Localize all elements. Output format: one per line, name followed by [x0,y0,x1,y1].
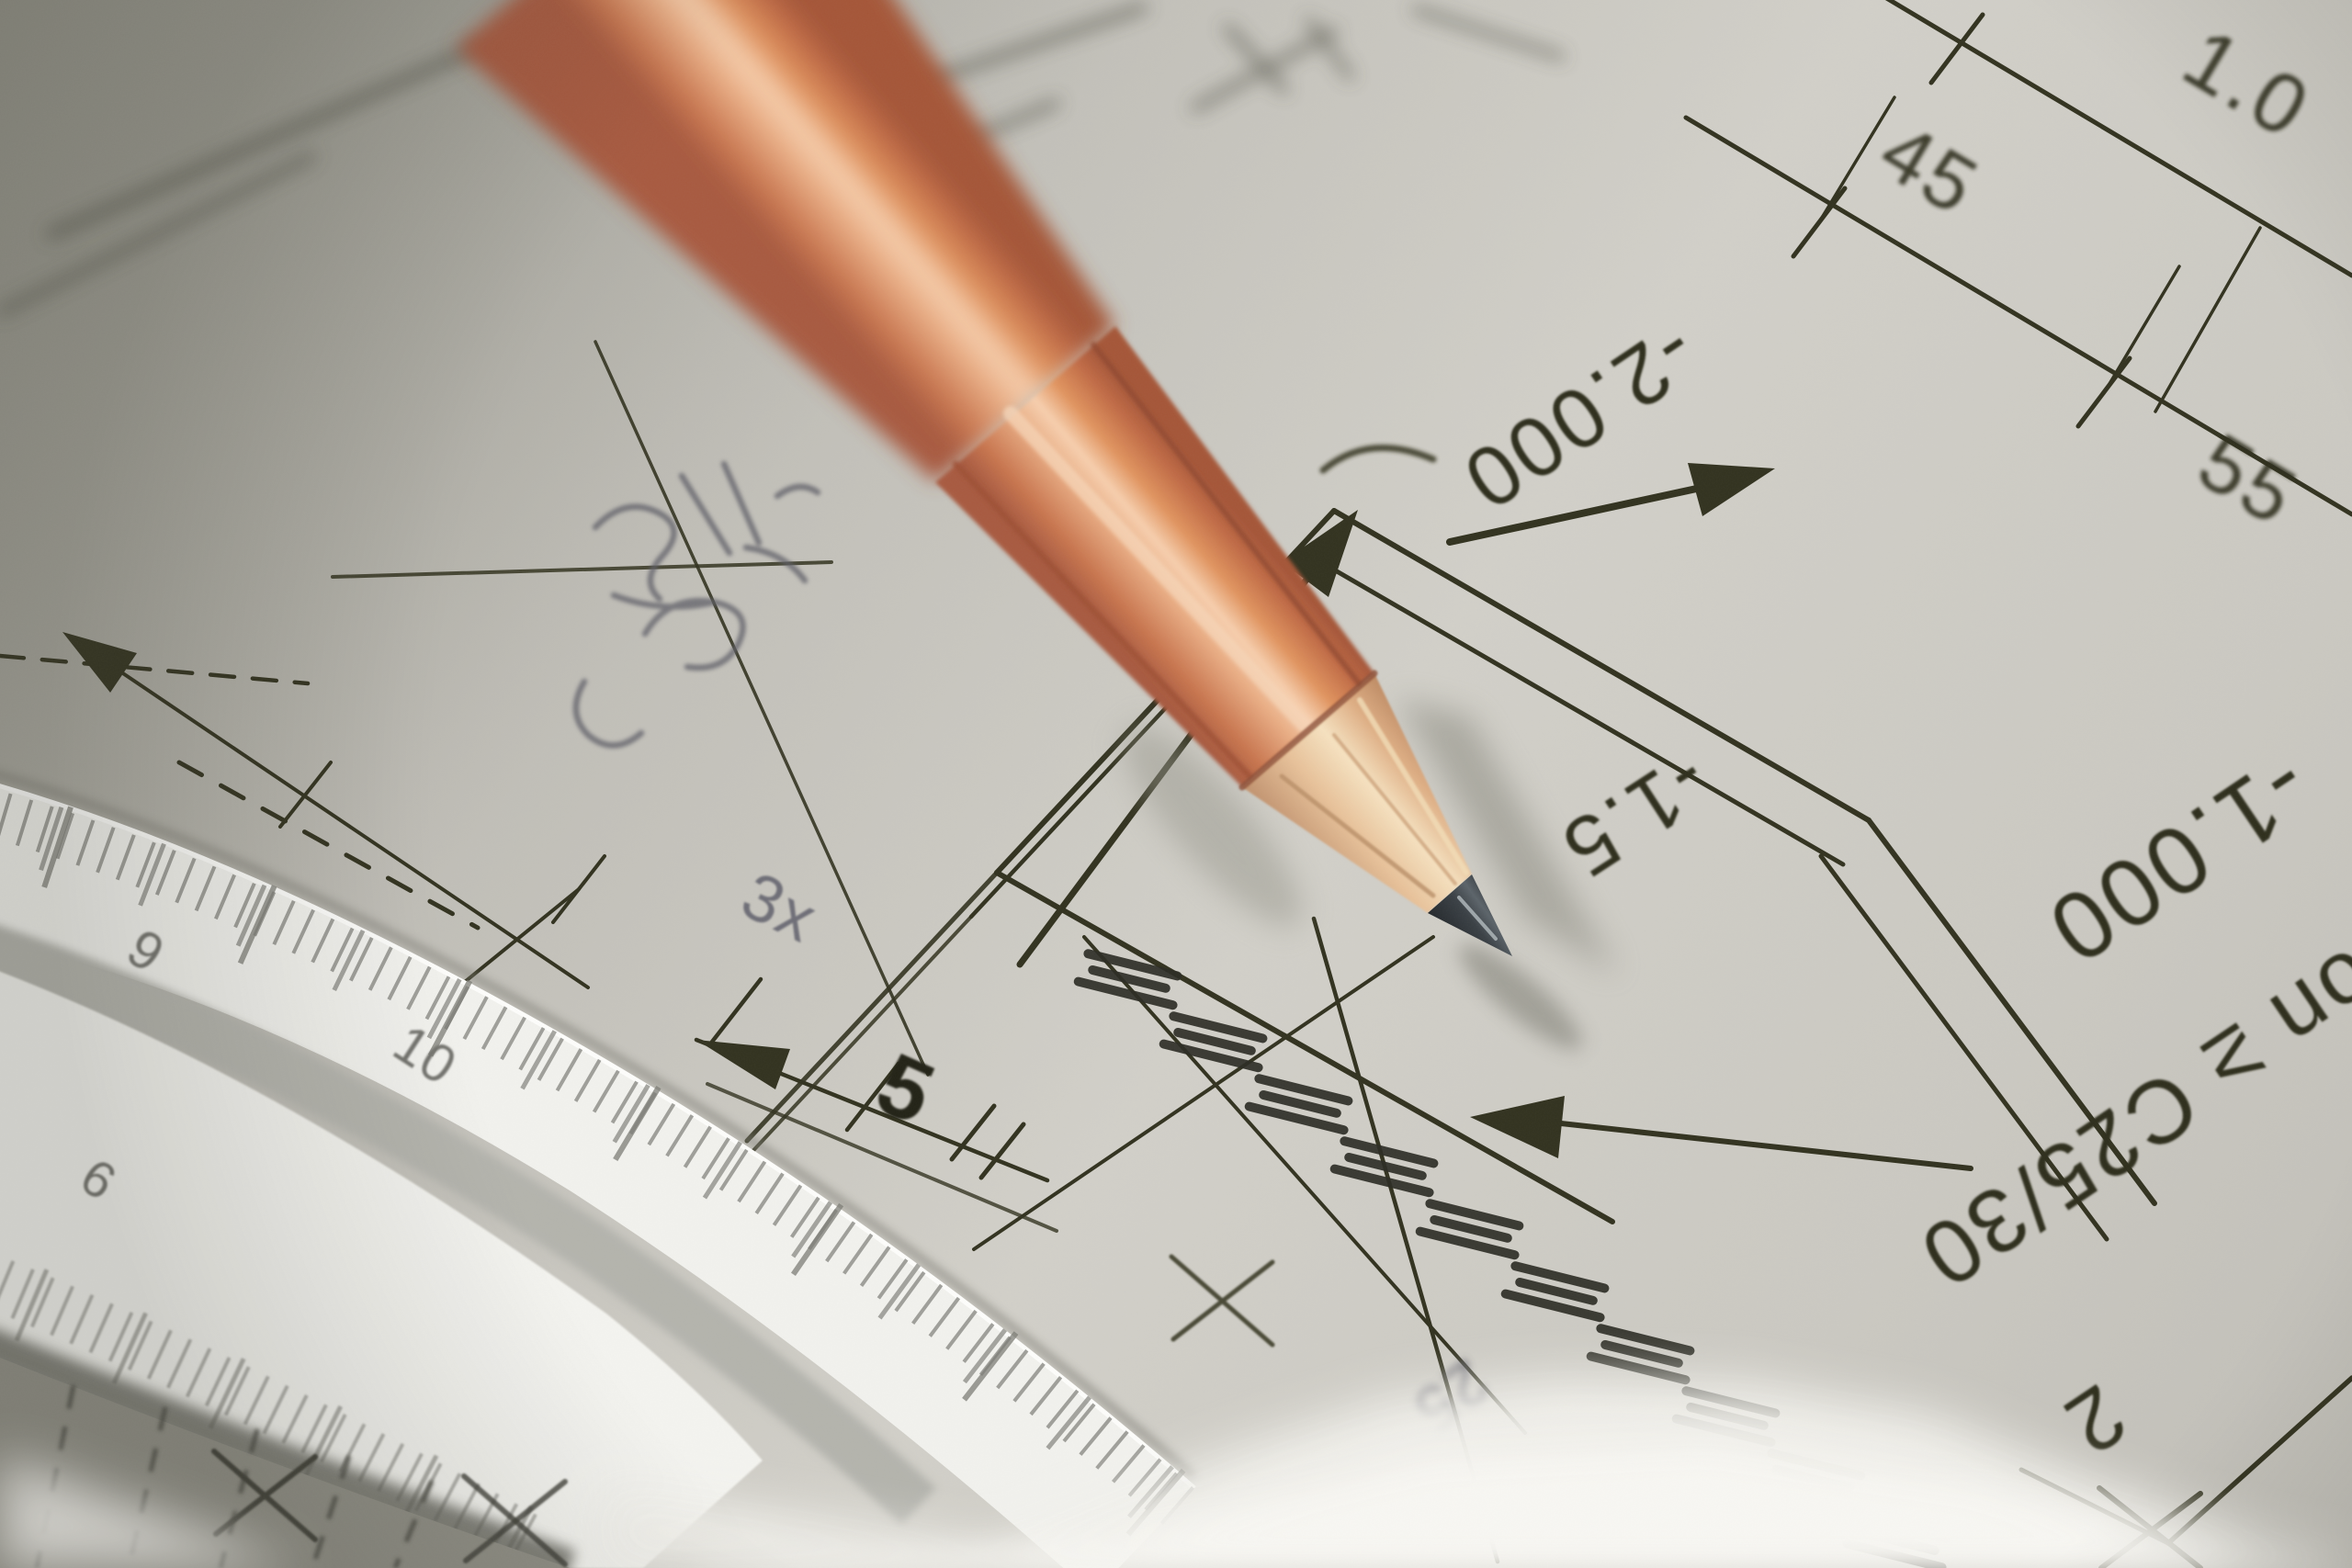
blueprint-pencil-photo: 1.0 45 55 -2.000 -1.5 -1.000 on ≥ C25/30… [0,0,2352,1568]
photo-stage: 1.0 45 55 -2.000 -1.5 -1.000 on ≥ C25/30… [0,0,2352,1568]
film-grain-overlay [0,0,2352,1568]
